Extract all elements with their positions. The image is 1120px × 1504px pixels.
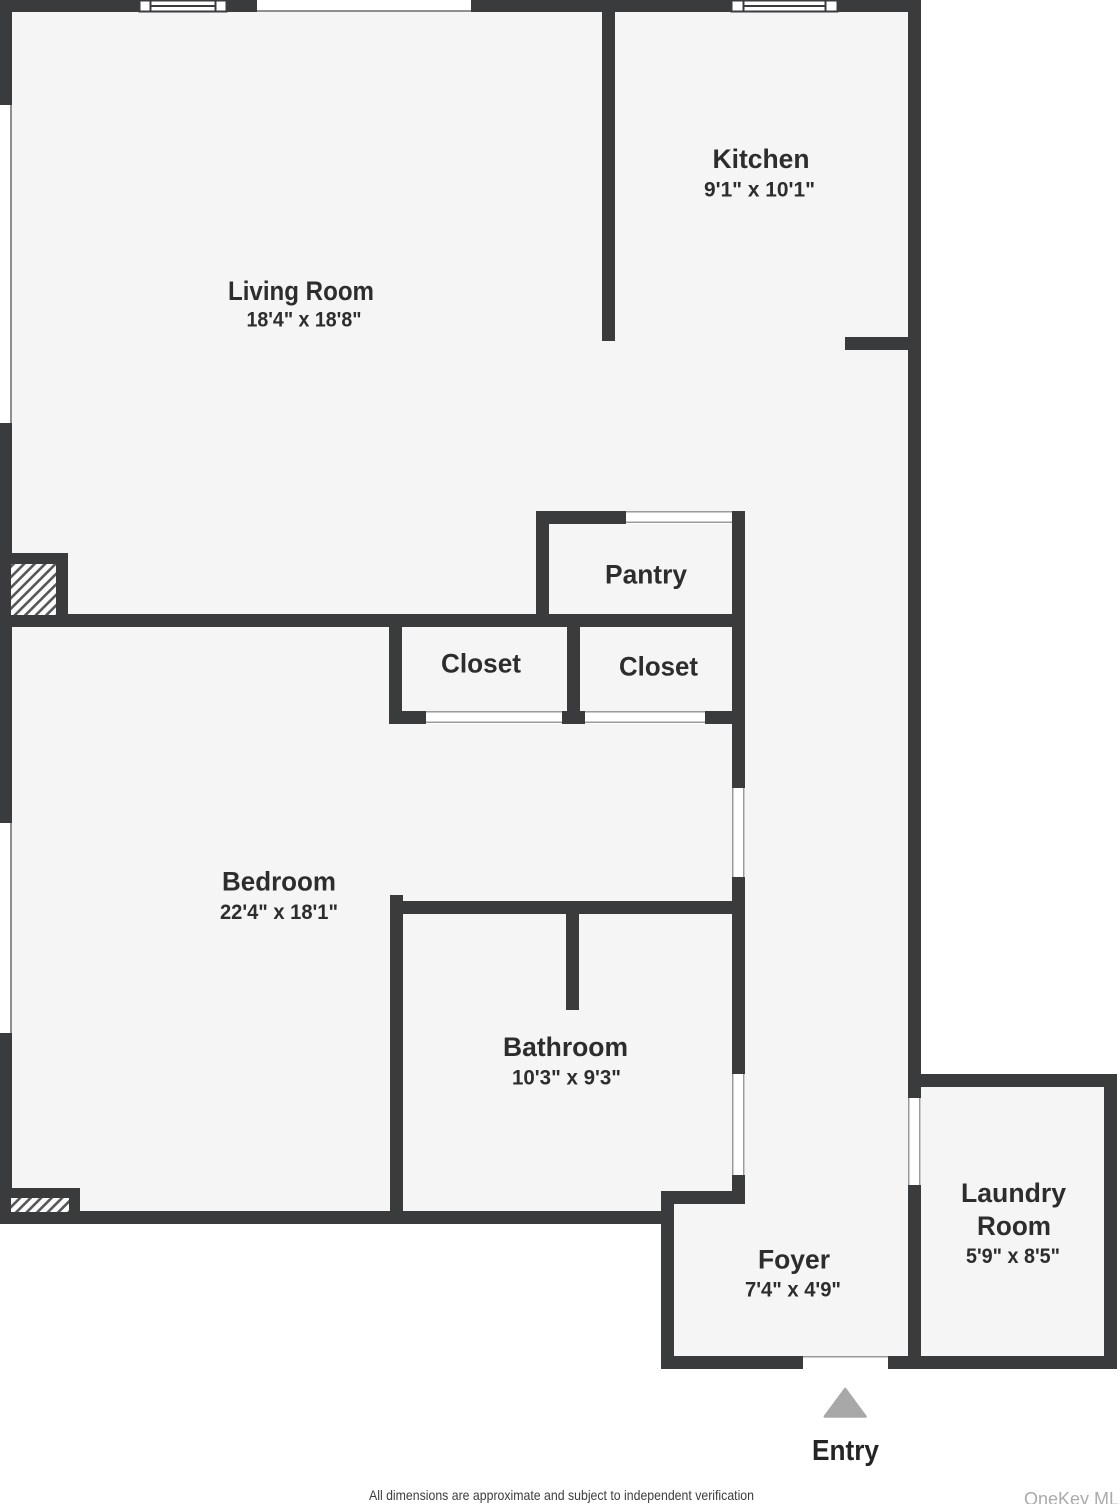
svg-text:Bathroom: Bathroom [503,1032,628,1062]
svg-text:Room: Room [977,1211,1051,1241]
svg-text:Bedroom: Bedroom [222,867,336,897]
svg-text:9'1" x 10'1": 9'1" x 10'1" [704,179,815,202]
svg-text:Pantry: Pantry [605,560,687,590]
svg-text:Closet: Closet [619,652,698,682]
svg-text:5'9" x 8'5": 5'9" x 8'5" [966,1245,1060,1268]
svg-text:Living Room: Living Room [228,276,374,306]
svg-text:18'4" x 18'8": 18'4" x 18'8" [247,309,362,332]
svg-text:Closet: Closet [441,649,521,679]
svg-text:Kitchen: Kitchen [713,144,810,174]
svg-text:Laundry: Laundry [961,1178,1066,1208]
svg-text:Entry: Entry [812,1435,879,1467]
svg-text:OneKey MLS: OneKey MLS [1024,1489,1120,1504]
svg-text:All dimensions are approximate: All dimensions are approximate and subje… [369,1487,754,1503]
svg-text:22'4" x 18'1": 22'4" x 18'1" [220,901,338,924]
svg-text:7'4" x 4'9": 7'4" x 4'9" [745,1279,841,1302]
svg-text:Foyer: Foyer [758,1245,830,1275]
svg-text:10'3" x 9'3": 10'3" x 9'3" [512,1067,621,1090]
